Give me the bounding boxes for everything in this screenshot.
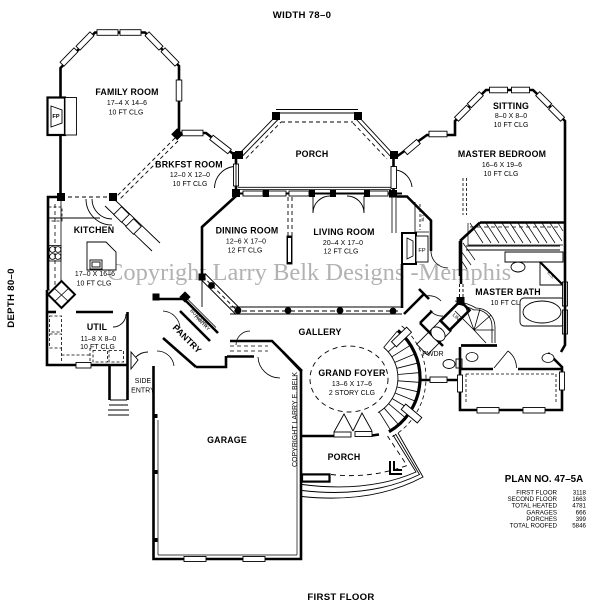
svg-text:KITCHEN: KITCHEN: [74, 225, 115, 235]
svg-text:12 FT CLG: 12 FT CLG: [228, 248, 263, 255]
svg-text:FP: FP: [52, 114, 59, 120]
svg-text:FP: FP: [418, 248, 425, 254]
svg-text:PWDR: PWDR: [422, 351, 443, 358]
svg-text:10 FT CLG: 10 FT CLG: [80, 344, 115, 351]
svg-text:PORCH: PORCH: [296, 149, 329, 159]
svg-text:10 FT CLG: 10 FT CLG: [173, 181, 208, 188]
svg-text:MASTER BATH: MASTER BATH: [475, 287, 541, 297]
svg-text:10 FT CLG: 10 FT CLG: [109, 110, 144, 117]
svg-text:11–8 X 8–0: 11–8 X 8–0: [81, 336, 117, 343]
svg-text:GALLERY: GALLERY: [298, 327, 341, 337]
svg-text:SIDE: SIDE: [135, 378, 152, 385]
svg-text:20–4 X 17–0: 20–4 X 17–0: [323, 240, 363, 247]
svg-text:2 STORY CLG: 2 STORY CLG: [329, 390, 375, 397]
svg-text:TOTAL ROOFED: TOTAL ROOFED: [510, 523, 558, 530]
svg-text:13–6 X 17–6: 13–6 X 17–6: [332, 381, 372, 388]
svg-text:DINING ROOM: DINING ROOM: [216, 226, 279, 236]
svg-text:FAMILY ROOM: FAMILY ROOM: [95, 87, 158, 97]
svg-text:10 FT CLG: 10 FT CLG: [484, 171, 519, 178]
svg-text:8–0 X 8–0: 8–0 X 8–0: [495, 113, 527, 120]
svg-text:5846: 5846: [572, 523, 586, 530]
svg-text:16–6 X 19–6: 16–6 X 19–6: [482, 162, 522, 169]
svg-text:BLT: BLT: [420, 214, 425, 222]
svg-text:MASTER BEDROOM: MASTER BEDROOM: [458, 149, 546, 159]
svg-text:LIVING ROOM: LIVING ROOM: [313, 227, 374, 237]
svg-text:GRAND FOYER: GRAND FOYER: [318, 368, 386, 378]
svg-text:PORCH: PORCH: [328, 452, 361, 462]
svg-text:DEPTH 80–0: DEPTH 80–0: [6, 268, 17, 328]
svg-text:12–6 X 17–0: 12–6 X 17–0: [226, 239, 266, 246]
svg-text:UTIL: UTIL: [87, 322, 108, 332]
svg-text:COPYRIGHT LARRY E. BELK: COPYRIGHT LARRY E. BELK: [292, 372, 299, 467]
svg-text:BRKFST ROOM: BRKFST ROOM: [155, 160, 223, 170]
svg-text:ENTRY: ENTRY: [131, 388, 155, 395]
svg-text:Copyright Larry Belk Designs -: Copyright Larry Belk Designs -Memphis: [107, 259, 511, 286]
svg-text:17–4 X 14–6: 17–4 X 14–6: [107, 100, 147, 107]
svg-text:12 FT CLG: 12 FT CLG: [324, 249, 359, 256]
svg-text:SITTING: SITTING: [493, 101, 529, 111]
svg-text:WIDTH 78–0: WIDTH 78–0: [273, 10, 331, 21]
svg-text:GARAGE: GARAGE: [207, 435, 247, 445]
svg-text:FIRST FLOOR: FIRST FLOOR: [307, 592, 374, 603]
svg-text:17–0 X 16–6: 17–0 X 16–6: [75, 271, 115, 278]
svg-text:PLAN NO. 47–5A: PLAN NO. 47–5A: [505, 474, 583, 485]
svg-text:10 FT CLG: 10 FT CLG: [494, 122, 529, 129]
svg-text:10 FT CLG: 10 FT CLG: [77, 281, 112, 288]
svg-text:12–0 X 12–0: 12–0 X 12–0: [170, 172, 210, 179]
